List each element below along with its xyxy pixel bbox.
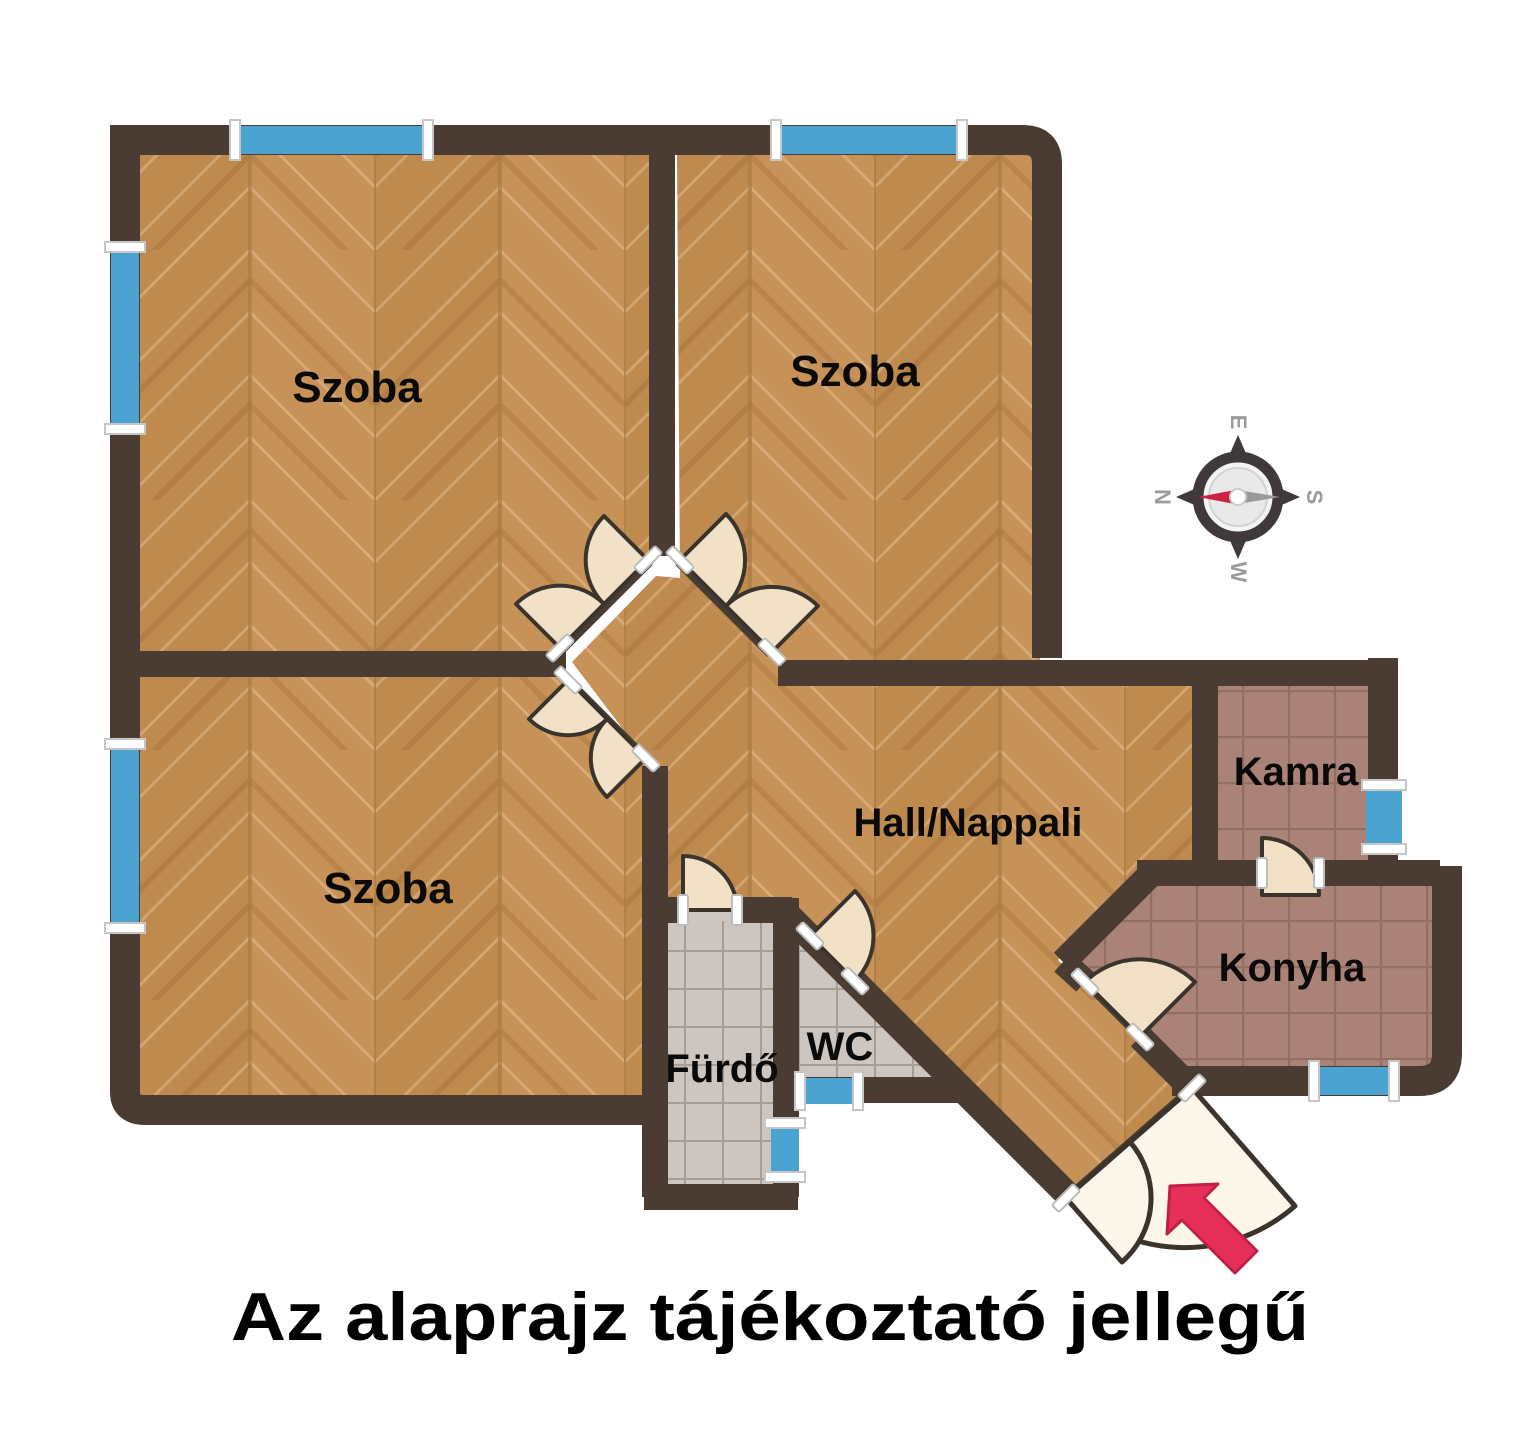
label-szoba-bottom-left: Szoba <box>323 864 453 913</box>
window-top-left <box>230 120 433 160</box>
window-furdo-right <box>765 1118 805 1182</box>
floor-plan-page: Szoba Szoba Szoba Hall/Nappali Kamra Kon… <box>0 0 1540 1440</box>
compass-label-south: S <box>1302 490 1327 505</box>
window-left-lower <box>105 739 145 933</box>
window-kamra-right <box>1362 780 1406 854</box>
compass-rose: E N S W <box>1150 415 1327 583</box>
compass-label-west: W <box>1226 562 1251 583</box>
label-szoba-top-right: Szoba <box>790 347 920 396</box>
window-top-right <box>771 120 967 160</box>
compass-label-north: N <box>1150 489 1175 505</box>
label-kamra: Kamra <box>1234 750 1359 794</box>
floor-plan: Szoba Szoba Szoba Hall/Nappali Kamra Kon… <box>0 0 1540 1440</box>
label-wc: WC <box>807 1025 874 1069</box>
label-szoba-top-left: Szoba <box>292 363 422 412</box>
window-left-upper <box>105 242 145 434</box>
compass-label-east: E <box>1226 415 1251 430</box>
page-title: Az alaprajz tájékoztató jellegű <box>231 1279 1309 1355</box>
label-furdo: Fürdő <box>665 1047 778 1091</box>
label-konyha: Konyha <box>1219 946 1366 990</box>
compass-pivot <box>1230 489 1246 505</box>
label-hall-nappali: Hall/Nappali <box>854 801 1083 845</box>
window-konyha-bottom <box>1309 1061 1399 1101</box>
